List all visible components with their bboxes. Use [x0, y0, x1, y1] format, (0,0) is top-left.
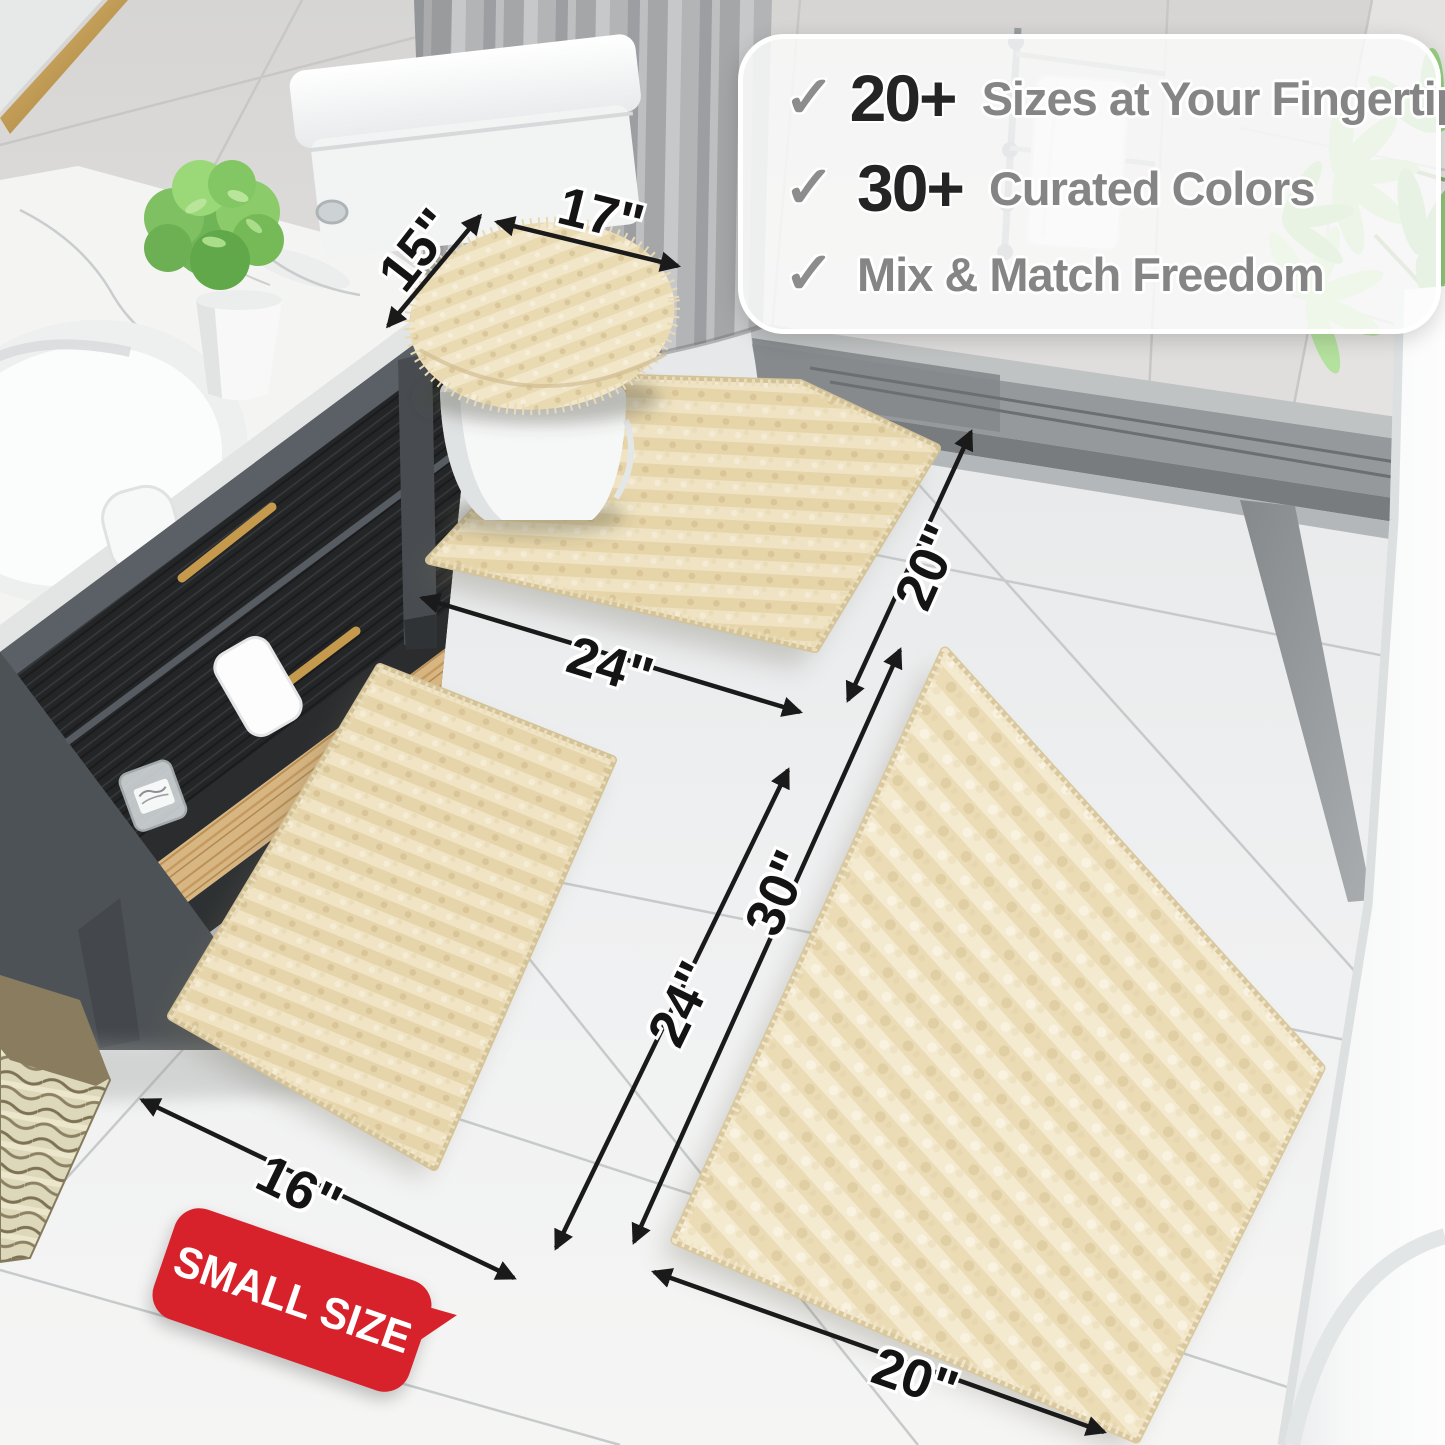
checkmark-icon: ✓ — [784, 245, 843, 303]
feature-label: Mix & Match Freedom — [857, 251, 1324, 298]
bath-rug-product-image: ✓ 20+ Sizes at Your Fingertips ✓ 30+ Cur… — [0, 0, 1445, 1445]
feature-label: Curated Colors — [989, 165, 1315, 212]
callout-row: ✓ 30+ Curated Colors — [785, 155, 1420, 221]
checkmark-icon: ✓ — [784, 159, 843, 217]
feature-value: 20+ — [850, 65, 956, 131]
badge-pointer — [411, 1301, 458, 1346]
checkmark-icon: ✓ — [784, 69, 835, 127]
feature-callout: ✓ 20+ Sizes at Your Fingertips ✓ 30+ Cur… — [738, 34, 1441, 334]
callout-row: ✓ 20+ Sizes at Your Fingertips — [785, 65, 1420, 131]
feature-value: 30+ — [857, 155, 963, 221]
flush-button — [317, 201, 347, 223]
plant-pot — [196, 290, 282, 400]
callout-row: ✓ Mix & Match Freedom — [785, 245, 1420, 303]
feature-label: Sizes at Your Fingertips — [982, 75, 1445, 122]
